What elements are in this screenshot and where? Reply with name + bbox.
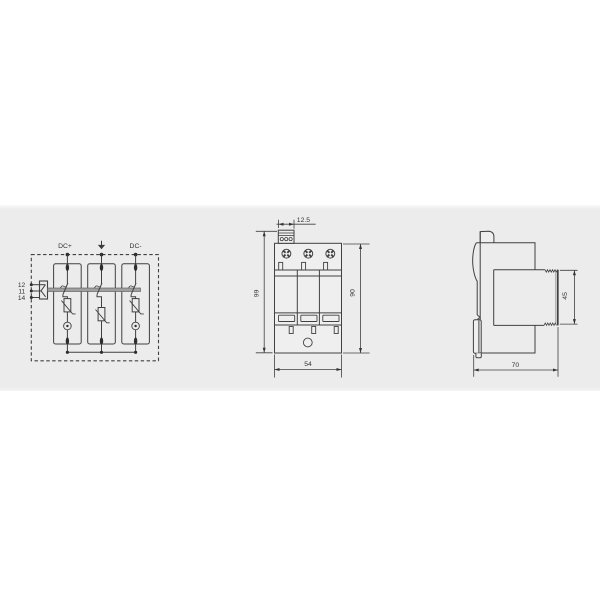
- svg-text:99: 99: [254, 289, 261, 297]
- svg-text:12.5: 12.5: [297, 217, 310, 224]
- svg-text:14: 14: [18, 295, 26, 302]
- svg-text:70: 70: [512, 362, 520, 369]
- svg-text:90: 90: [350, 289, 357, 297]
- svg-text:54: 54: [304, 361, 312, 368]
- svg-text:45: 45: [562, 292, 569, 300]
- svg-text:DC-: DC-: [130, 243, 142, 250]
- svg-text:DC+: DC+: [58, 243, 72, 250]
